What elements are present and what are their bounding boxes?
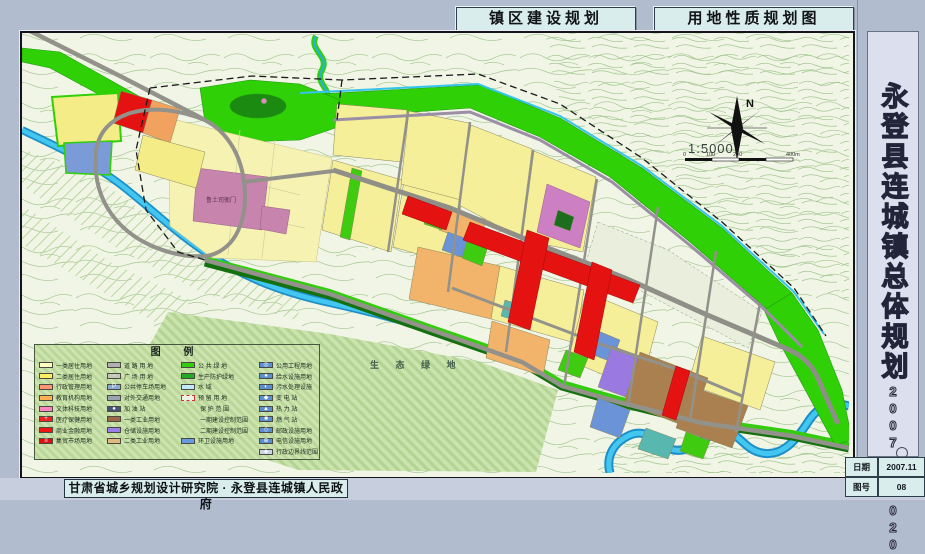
svg-text:200: 200 [733, 152, 742, 158]
map-frame: N 1:5000 0 100 200 400m 生 态 绿 地 鲁土司衙门 图 … [20, 31, 855, 479]
legend-swatch: ■ [259, 416, 273, 422]
legend-item-label: 二类工业用地 [124, 436, 160, 445]
legend-item-label: 行政管理用地 [56, 382, 92, 391]
legend-item: 教育机构用地 [39, 392, 107, 403]
north-label: N [746, 98, 754, 110]
svg-text:400m: 400m [786, 152, 800, 158]
legend-item: 二类工业用地 [107, 436, 181, 447]
sidebar-panel: 永登县连城镇总体规划 2007——2020 [867, 31, 919, 457]
legend-swatch [107, 395, 121, 401]
legend-item: ◐污水处理设施 [259, 382, 325, 393]
sheet-number-value: 08 [878, 477, 925, 497]
credit-box: 甘肃省城乡规划设计研究院 · 永登县连城镇人民政府 [64, 479, 348, 498]
legend-swatch [39, 384, 53, 390]
legend-item: ▲热 力 站 [259, 403, 325, 414]
map-legend: 图 例 一类居住用地二类居住用地行政管理用地教育机构用地文体科技用地+医疗保健用… [34, 344, 320, 460]
legend-item: 预 留 用 地 [181, 392, 259, 403]
legend-item-label: 公共停车场用地 [124, 382, 166, 391]
legend-swatch: ⊕ [259, 438, 273, 444]
legend-title: 图 例 [39, 346, 315, 360]
legend-swatch-icon: ▲ [260, 405, 272, 411]
legend-swatch: ● [259, 373, 273, 379]
legend-swatch: ◆ [259, 395, 273, 401]
legend-item-label: 一类居住用地 [56, 361, 92, 370]
legend-item: ●加 油 站 [107, 403, 181, 414]
legend-item: ⊕电信设施用地 [259, 436, 325, 447]
legend-item: ◎公用工程用地 [259, 360, 325, 371]
legend-swatch: ● [107, 406, 121, 412]
legend-item: ●给水设施用地 [259, 371, 325, 382]
legend-item: 保 护 范 围 [181, 403, 259, 414]
legend-item: 对外交通用地 [107, 392, 181, 403]
legend-item-label: 医疗保健用地 [56, 415, 92, 424]
legend-swatch-icon: ≡ [40, 437, 52, 443]
sheet-title-vertical: 永登县连城镇总体规划 [874, 32, 913, 382]
title-landuse-plan: 用地性质规划图 [654, 7, 854, 31]
svg-text:100: 100 [706, 152, 715, 158]
legend-swatch [39, 395, 53, 401]
planning-map-sheet: 镇区建设规划 用地性质规划图 [0, 0, 925, 500]
legend-item-label: 邮政设施用地 [276, 426, 312, 435]
legend-item-label: 对外交通用地 [124, 393, 160, 402]
sheet-sidebar: 永登县连城镇总体规划 2007——2020 [857, 0, 925, 500]
legend-swatch: ≡ [39, 438, 53, 444]
legend-item-label: 变 电 站 [276, 393, 297, 402]
legend-swatch [181, 373, 195, 379]
legend-swatch: + [39, 416, 53, 422]
legend-swatch: ◐ [259, 384, 273, 390]
legend-item: 一期建设控制范围 [181, 414, 259, 425]
legend-swatch [39, 406, 53, 412]
legend-item: 行政管理用地 [39, 382, 107, 393]
legend-item-label: 保 护 范 围 [200, 404, 229, 413]
date-label: 日期 [845, 457, 878, 477]
legend-item-label: 文体科技用地 [56, 404, 92, 413]
legend-swatch-icon: ■ [260, 415, 272, 421]
legend-item-label: 污水处理设施 [276, 382, 312, 391]
legend-item: ◆变 电 站 [259, 392, 325, 403]
legend-item-label: 热 力 站 [276, 404, 297, 413]
legend-swatch-icon: P [108, 383, 120, 389]
legend-item-label: 生产防护绿地 [198, 372, 234, 381]
legend-item: 商业金融用地 [39, 425, 107, 436]
legend-swatch [181, 438, 195, 444]
legend-item: ◈行政边界线范围 [259, 446, 325, 457]
legend-item: P公共停车场用地 [107, 382, 181, 393]
svg-text:0: 0 [683, 152, 686, 158]
legend-item: 环卫设施用地 [181, 436, 259, 447]
legend-swatch-icon: ⊕ [260, 437, 272, 443]
legend-item-label: 给水设施用地 [276, 372, 312, 381]
legend-swatch-icon: ◇ [260, 426, 272, 432]
legend-swatch-icon: + [40, 415, 52, 421]
legend-item-label: 一类工业用地 [124, 415, 160, 424]
sheet-info-table: 日期 2007.11 图号 08 [845, 457, 925, 498]
legend-item: +医疗保健用地 [39, 414, 107, 425]
legend-item: ~水 域 [181, 382, 259, 393]
legend-item-label: 公用工程用地 [276, 361, 312, 370]
legend-swatch [107, 438, 121, 444]
legend-item: ◇邮政设施用地 [259, 425, 325, 436]
legend-swatch-icon: ● [260, 372, 272, 378]
legend-item: 一类居住用地 [39, 360, 107, 371]
legend-swatch-icon: ~ [182, 383, 194, 389]
legend-item-label: 教育机构用地 [56, 393, 92, 402]
legend-swatch: P [107, 384, 121, 390]
legend-item-label: 水 域 [198, 382, 212, 391]
legend-item-label: 商业金融用地 [56, 426, 92, 435]
legend-swatch [181, 362, 195, 368]
eco-green-label: 生 态 绿 地 [370, 359, 463, 370]
legend-swatch [39, 427, 53, 433]
legend-item-label: 一期建设控制范围 [200, 415, 248, 424]
legend-swatch-icon: ◎ [260, 361, 272, 367]
legend-item-label: 加 油 站 [124, 404, 145, 413]
legend-swatch-icon: ◐ [260, 383, 272, 389]
legend-item-label: 道 路 用 地 [124, 361, 153, 370]
legend-item: ■燃 气 站 [259, 414, 325, 425]
heritage-site-label: 鲁土司衙门 [206, 196, 236, 204]
legend-item: 二类居住用地 [39, 371, 107, 382]
legend-item-label: 仓储设施用地 [124, 426, 160, 435]
legend-swatch: ◎ [259, 362, 273, 368]
legend-item-label: 行政边界线范围 [276, 447, 318, 456]
legend-item-label: 二类居住用地 [56, 372, 92, 381]
legend-item-label: 环卫设施用地 [198, 436, 234, 445]
legend-swatch-icon: ● [108, 405, 120, 411]
legend-item-label: 燃 气 站 [276, 415, 297, 424]
legend-item-label: 预 留 用 地 [198, 393, 227, 402]
legend-item-label: 广 场 用 地 [124, 372, 153, 381]
legend-item: ∙∙广 场 用 地 [107, 371, 181, 382]
legend-item-label: 二期建设控制范围 [200, 426, 248, 435]
date-value: 2007.11 [878, 457, 925, 477]
legend-item: ≡集贸市场用地 [39, 436, 107, 447]
legend-swatch [39, 373, 53, 379]
legend-swatch-icon: ∙∙ [108, 372, 120, 378]
legend-swatch [107, 427, 121, 433]
legend-swatch: ◇ [259, 427, 273, 433]
legend-swatch-icon: ◆ [260, 394, 272, 400]
legend-item: 仓储设施用地 [107, 425, 181, 436]
legend-swatch-icon: ◈ [260, 448, 272, 454]
title-construction-plan: 镇区建设规划 [456, 7, 636, 31]
legend-swatch [107, 416, 121, 422]
legend-item: 一类工业用地 [107, 414, 181, 425]
legend-swatch: ∙∙ [107, 373, 121, 379]
legend-item-label: 电信设施用地 [276, 436, 312, 445]
legend-item: 文体科技用地 [39, 403, 107, 414]
legend-swatch: ~ [181, 384, 195, 390]
legend-item: 二期建设控制范围 [181, 425, 259, 436]
legend-item-label: 公 共 绿 地 [198, 361, 227, 370]
sheet-number-label: 图号 [845, 477, 878, 497]
legend-item: 公 共 绿 地 [181, 360, 259, 371]
legend-swatch: ◈ [259, 449, 273, 455]
legend-item: 道 路 用 地 [107, 360, 181, 371]
legend-swatch [39, 362, 53, 368]
legend-swatch: ▲ [259, 406, 273, 412]
legend-item-label: 集贸市场用地 [56, 436, 92, 445]
legend-columns: 一类居住用地二类居住用地行政管理用地教育机构用地文体科技用地+医疗保健用地商业金… [39, 360, 315, 457]
legend-item: 生产防护绿地 [181, 371, 259, 382]
legend-swatch [181, 395, 195, 401]
legend-swatch [107, 362, 121, 368]
